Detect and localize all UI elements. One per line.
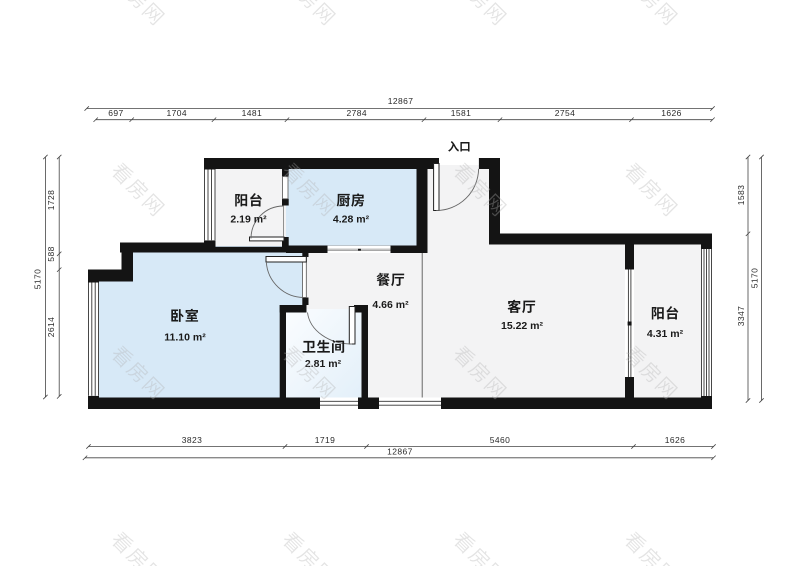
svg-text:3823: 3823 (182, 435, 203, 445)
svg-text:15.22 m²: 15.22 m² (501, 320, 544, 332)
svg-text:588: 588 (46, 246, 56, 261)
svg-text:5170: 5170 (750, 268, 760, 289)
svg-text:5170: 5170 (33, 269, 43, 290)
svg-text:1626: 1626 (665, 435, 686, 445)
svg-text:1581: 1581 (451, 108, 472, 118)
svg-text:3347: 3347 (736, 306, 746, 327)
svg-text:1719: 1719 (315, 435, 336, 445)
svg-text:1626: 1626 (661, 108, 682, 118)
svg-text:1583: 1583 (736, 185, 746, 206)
svg-text:2614: 2614 (46, 317, 56, 338)
svg-text:1481: 1481 (242, 108, 263, 118)
svg-text:5460: 5460 (490, 435, 511, 445)
svg-text:12867: 12867 (388, 96, 414, 106)
svg-text:697: 697 (108, 108, 123, 118)
svg-text:1704: 1704 (166, 108, 187, 118)
svg-text:4.66 m²: 4.66 m² (372, 299, 409, 311)
svg-text:11.10 m²: 11.10 m² (164, 331, 206, 343)
svg-text:12867: 12867 (387, 446, 413, 456)
svg-text:2754: 2754 (555, 108, 576, 118)
svg-text:2784: 2784 (346, 108, 367, 118)
svg-text:4.28 m²: 4.28 m² (333, 213, 370, 225)
svg-text:4.31 m²: 4.31 m² (647, 328, 684, 340)
svg-text:1728: 1728 (46, 190, 56, 211)
svg-text:2.19 m²: 2.19 m² (230, 213, 267, 225)
